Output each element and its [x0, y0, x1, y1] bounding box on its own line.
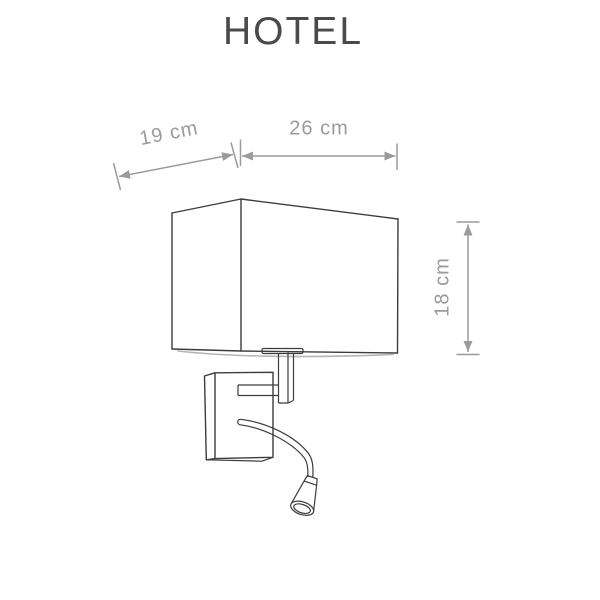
gooseneck-reading-light [238, 419, 324, 518]
dimension-label-width: 26 cm [289, 118, 348, 141]
gooseneck-outer [241, 419, 313, 477]
dimension-arrow-line [119, 155, 233, 177]
shade-bottom-edges [172, 349, 398, 353]
product-dimension-diagram: HOTEL [0, 0, 600, 600]
shade-right-edge [398, 219, 399, 353]
gooseneck-inner [241, 425, 308, 477]
wall-mount-bracket [205, 372, 274, 461]
dimension-26cm [241, 140, 398, 171]
led-head [289, 474, 324, 518]
lamp-shade [172, 199, 398, 357]
bracket-side-face [205, 373, 216, 460]
support-arm [238, 353, 294, 404]
gooseneck-cap [238, 419, 241, 425]
lamp-technical-drawing [0, 0, 600, 600]
dimension-label-height: 18 cm [432, 257, 455, 316]
dimension-19cm [114, 143, 239, 191]
tube-bottom [279, 401, 294, 404]
shade-top-edges [172, 199, 398, 219]
dimension-18cm [457, 222, 480, 355]
led-head-collar [304, 475, 318, 485]
